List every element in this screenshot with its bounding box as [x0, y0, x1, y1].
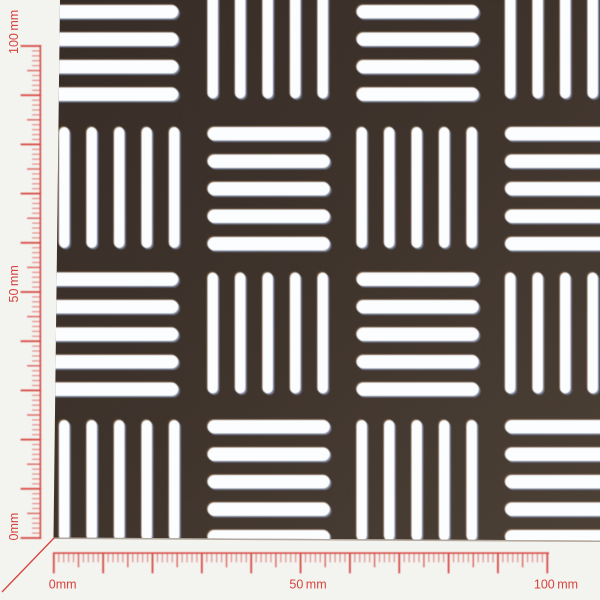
- svg-text:100 mm: 100 mm: [7, 10, 21, 54]
- svg-text:50 mm: 50 mm: [289, 578, 326, 592]
- svg-text:50 mm: 50 mm: [7, 265, 21, 302]
- svg-text:0mm: 0mm: [49, 578, 77, 592]
- svg-text:0mm: 0mm: [7, 513, 21, 541]
- svg-text:100 mm: 100 mm: [534, 578, 578, 592]
